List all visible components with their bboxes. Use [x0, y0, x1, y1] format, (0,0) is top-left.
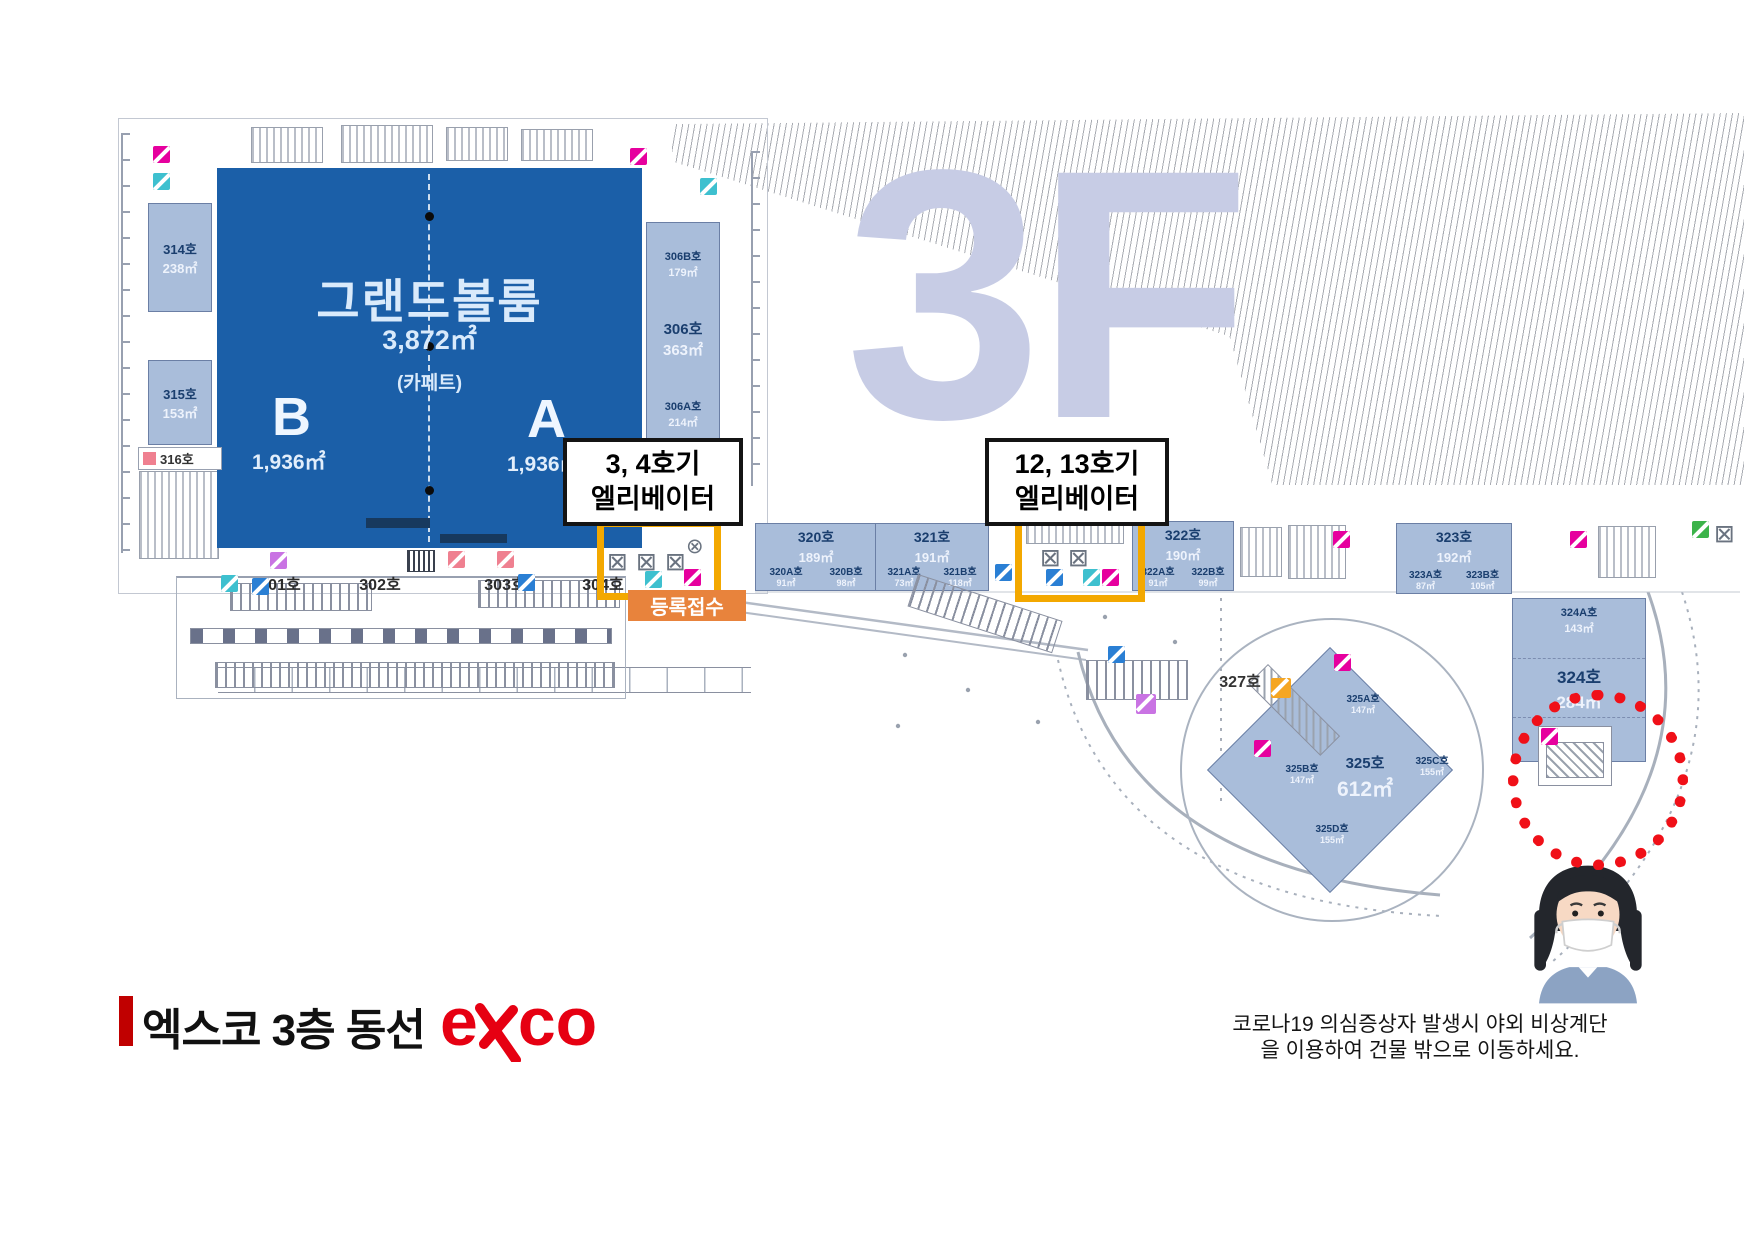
room-325a: 325A호 147㎡ — [1320, 694, 1406, 715]
room-314: 314호 238㎡ — [148, 203, 212, 312]
terrace-columns — [190, 628, 612, 644]
restroom-icon — [448, 551, 465, 568]
emergency-exit-highlight-circle — [1508, 690, 1688, 870]
room-322: 322호 190㎡ 322A호 91㎡ 322B호 99㎡ — [1132, 521, 1234, 591]
hall-b-area: 1,936㎡ — [252, 446, 326, 476]
masked-person-illustration — [1518, 856, 1658, 1006]
hall-a-label: A — [527, 388, 566, 450]
exit-icon — [1692, 521, 1709, 538]
registration-desk-tag: 등록접수 — [628, 590, 746, 621]
stairs-icon — [153, 173, 170, 190]
restroom-icon — [497, 551, 514, 568]
floorplan-slide: 3F 그랜드볼룸 3,872㎡ (카페트) B 1,936㎡ A — [0, 0, 1754, 1239]
room-322b: 322B호 99㎡ — [1191, 567, 1224, 588]
restroom-icon — [143, 452, 156, 465]
stairs-down-icon — [518, 574, 535, 591]
room-306a-label: 306A호 — [647, 398, 719, 414]
room-322-area: 190㎡ — [1133, 545, 1233, 564]
escalator-icon — [630, 148, 647, 165]
escalator-icon — [1334, 654, 1351, 671]
corridor-machinery — [1598, 526, 1656, 578]
elevator-1213-callout: 12, 13호기 엘리베이터 — [985, 438, 1169, 526]
stairs-down-icon — [252, 578, 269, 595]
divider-dot — [425, 486, 434, 495]
room-316-label: 316호 — [160, 449, 194, 468]
escalator-icon — [153, 146, 170, 163]
stairs-icon — [700, 178, 717, 195]
wall-grille — [407, 550, 435, 572]
room-306a: 306A호 214㎡ — [647, 398, 719, 430]
room-315: 315호 153㎡ — [148, 360, 212, 445]
elevator-1213-line2: 엘리베이터 — [989, 482, 1165, 517]
room-315-label: 315호 — [149, 384, 211, 403]
elevator-icon: ⊠ — [1714, 522, 1735, 547]
room-320-label: 320호 — [756, 527, 876, 547]
info-icon — [1271, 678, 1291, 698]
room-306: 306호 363㎡ — [647, 318, 719, 360]
room-320-area: 189㎡ — [756, 547, 876, 566]
room-324a: 324A호 143㎡ — [1513, 604, 1645, 636]
room-325c: 325C호 155㎡ — [1392, 756, 1472, 777]
room-321-area: 191㎡ — [876, 547, 988, 566]
hall-b-label: B — [272, 386, 311, 448]
divider-dot — [425, 212, 434, 221]
room-320a: 320A호 91㎡ — [769, 567, 802, 588]
terrace-lower-band — [215, 662, 615, 688]
escalator-icon — [1333, 531, 1350, 548]
room-321-label: 321호 — [876, 527, 988, 547]
room-315-area: 153㎡ — [149, 403, 211, 422]
room-325d: 325D호 155㎡ — [1292, 824, 1372, 845]
stairs-down-icon — [995, 564, 1012, 581]
room-302-label: 302호 — [345, 571, 415, 595]
room-306-label: 306호 — [647, 318, 719, 339]
room-323-label: 323호 — [1397, 527, 1511, 547]
stairs-icon — [221, 575, 238, 592]
room-327-label: 327호 — [1205, 668, 1275, 692]
elevator-1213-highlight-box — [1015, 518, 1145, 602]
room-323b: 323B호 105㎡ — [1466, 570, 1499, 591]
stairs-down-icon — [1108, 646, 1125, 663]
room-314-area: 238㎡ — [149, 258, 211, 277]
stage-block — [440, 534, 507, 543]
room-316: 316호 — [138, 447, 222, 470]
elevator-34-line2: 엘리베이터 — [567, 482, 739, 517]
elevator-34-callout: 3, 4호기 엘리베이터 — [563, 438, 743, 526]
elevator-34-highlight-box — [597, 520, 721, 600]
room-306a-area: 214㎡ — [647, 414, 719, 430]
room-322a: 322A호 91㎡ — [1141, 567, 1174, 588]
ballroom-area: 3,872㎡ — [217, 318, 642, 357]
corridor-machinery — [1240, 527, 1282, 577]
escalator-icon — [1254, 740, 1271, 757]
escalator-icon — [1136, 694, 1156, 714]
room-320: 320호 189㎡ 320A호 91㎡ 320B호 98㎡ — [755, 523, 877, 591]
room-306b: 306B호 179㎡ — [647, 248, 719, 280]
room-306b-area: 179㎡ — [647, 264, 719, 280]
room-322-label: 322호 — [1133, 525, 1233, 545]
room-314-label: 314호 — [149, 239, 211, 258]
stage-block — [366, 518, 430, 528]
escalator-icon — [270, 552, 287, 569]
room-320b: 320B호 98㎡ — [829, 567, 862, 588]
elevator-34-line1: 3, 4호기 — [567, 447, 739, 482]
room-323a: 323A호 87㎡ — [1409, 570, 1442, 591]
escalator-icon — [1570, 531, 1587, 548]
room-323: 323호 192㎡ 323A호 87㎡ 323B호 105㎡ — [1396, 523, 1512, 594]
room-306-column: 306B호 179㎡ 306호 363㎡ 306A호 214㎡ — [646, 222, 720, 456]
elevator-1213-line1: 12, 13호기 — [989, 447, 1165, 482]
room-306b-label: 306B호 — [647, 248, 719, 264]
room-323-area: 192㎡ — [1397, 547, 1511, 566]
room-306-area: 363㎡ — [647, 339, 719, 360]
